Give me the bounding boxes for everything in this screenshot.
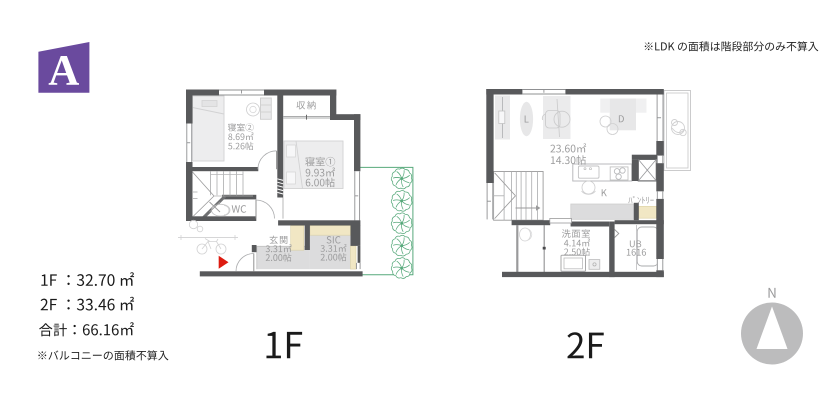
svg-text:A: A xyxy=(48,48,79,95)
